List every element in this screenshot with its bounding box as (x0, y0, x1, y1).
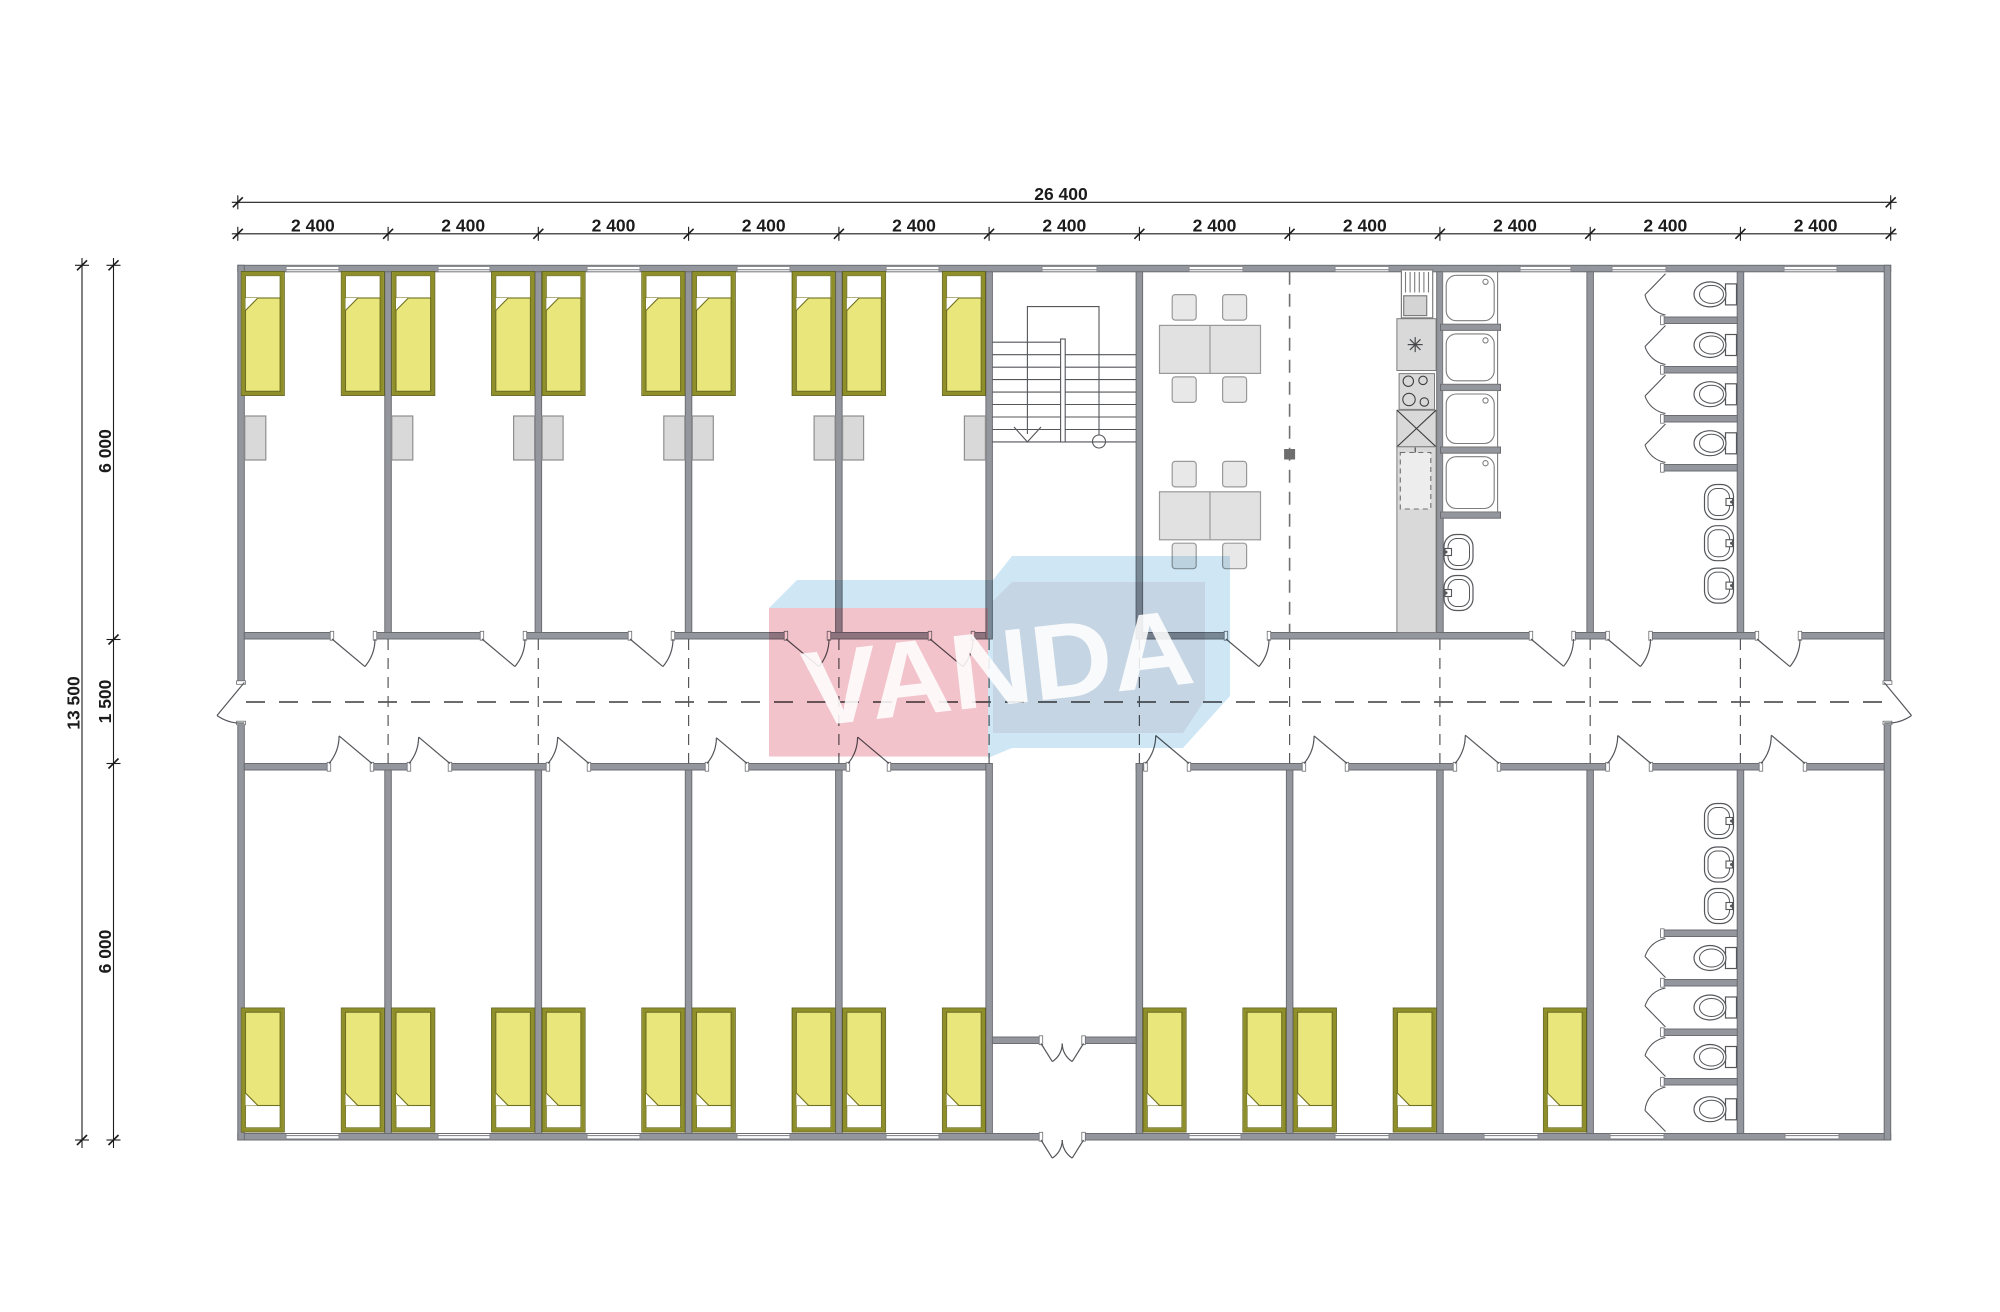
svg-text:2 400: 2 400 (291, 216, 335, 236)
svg-text:1 500: 1 500 (95, 679, 115, 723)
svg-text:2 400: 2 400 (441, 216, 485, 236)
svg-text:2 400: 2 400 (1794, 216, 1838, 236)
svg-text:6 000: 6 000 (95, 429, 115, 473)
svg-text:6 000: 6 000 (95, 929, 115, 973)
svg-text:2 400: 2 400 (592, 216, 636, 236)
svg-text:2 400: 2 400 (1193, 216, 1237, 236)
svg-text:2 400: 2 400 (1042, 216, 1086, 236)
svg-text:2 400: 2 400 (1643, 216, 1687, 236)
svg-text:13 500: 13 500 (64, 676, 84, 730)
svg-text:2 400: 2 400 (892, 216, 936, 236)
svg-text:2 400: 2 400 (1493, 216, 1537, 236)
svg-text:2 400: 2 400 (1343, 216, 1387, 236)
svg-text:26 400: 26 400 (1034, 184, 1088, 204)
svg-text:2 400: 2 400 (742, 216, 786, 236)
